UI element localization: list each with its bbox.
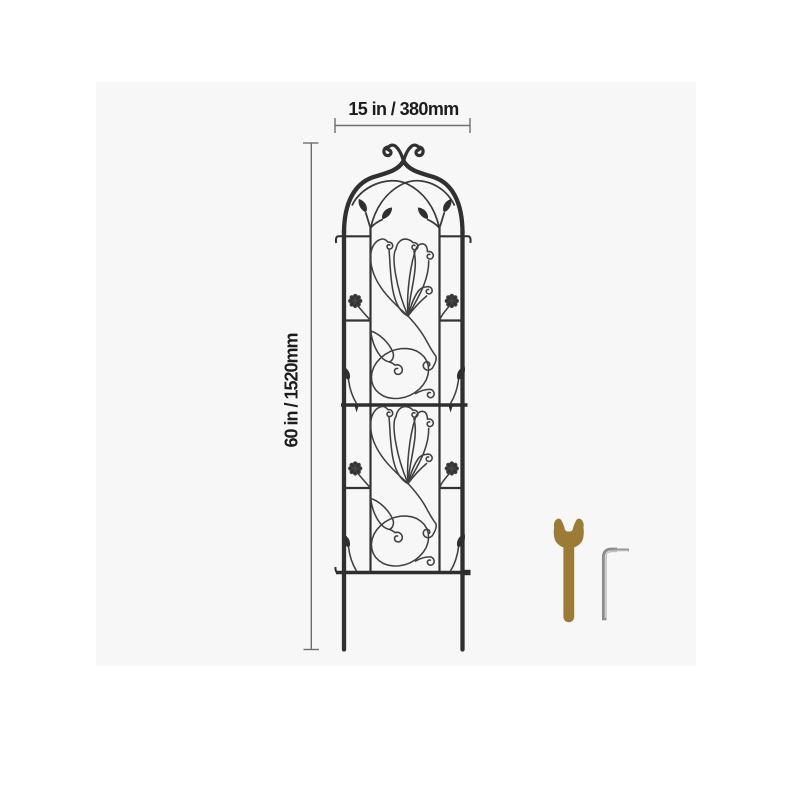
svg-text:15 in / 380mm: 15 in / 380mm	[348, 99, 458, 119]
svg-text:60 in / 1520mm: 60 in / 1520mm	[282, 333, 302, 447]
